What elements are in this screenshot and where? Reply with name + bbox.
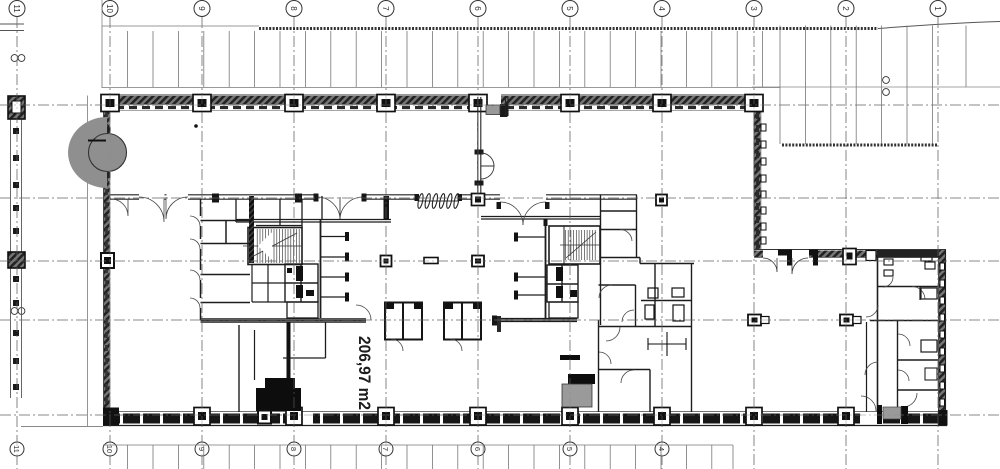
svg-text:8: 8	[289, 6, 298, 11]
svg-text:4: 4	[657, 6, 666, 11]
svg-text:3: 3	[749, 6, 758, 11]
svg-text:1: 1	[933, 6, 942, 11]
svg-text:11: 11	[12, 4, 21, 13]
svg-text:9: 9	[197, 6, 206, 11]
svg-text:206,97 m2: 206,97 m2	[355, 336, 374, 410]
svg-text:7: 7	[381, 6, 390, 11]
svg-text:10: 10	[105, 4, 114, 13]
svg-text:2: 2	[841, 6, 850, 11]
svg-text:6: 6	[473, 6, 482, 11]
svg-text:5: 5	[565, 6, 574, 11]
